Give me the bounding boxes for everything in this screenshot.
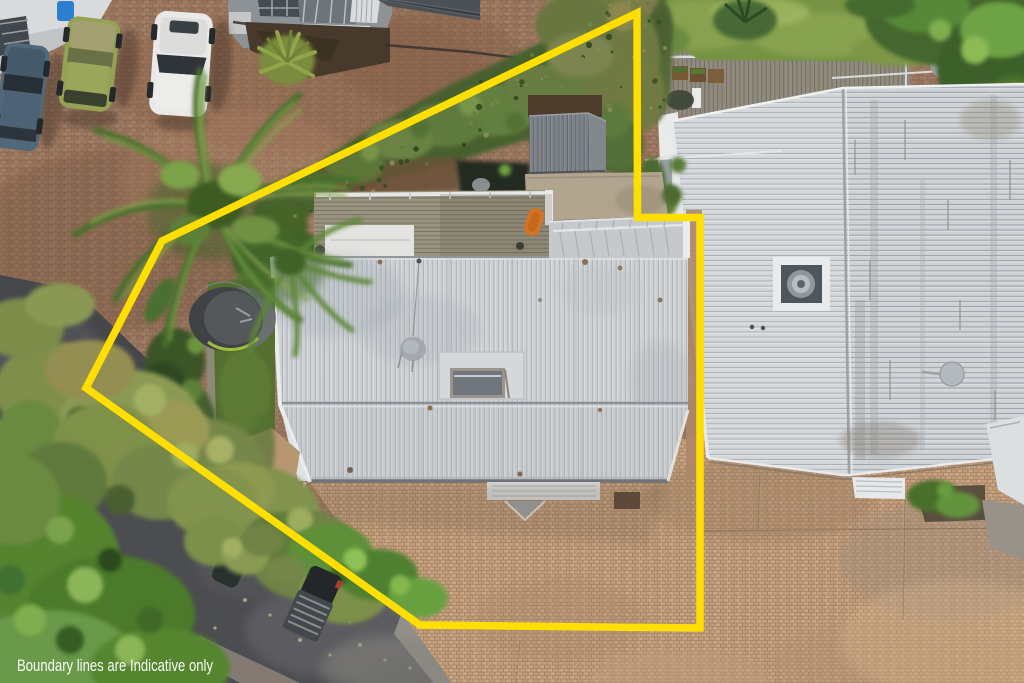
svg-text:Boundary lines are Indicative: Boundary lines are Indicative only — [17, 656, 213, 675]
